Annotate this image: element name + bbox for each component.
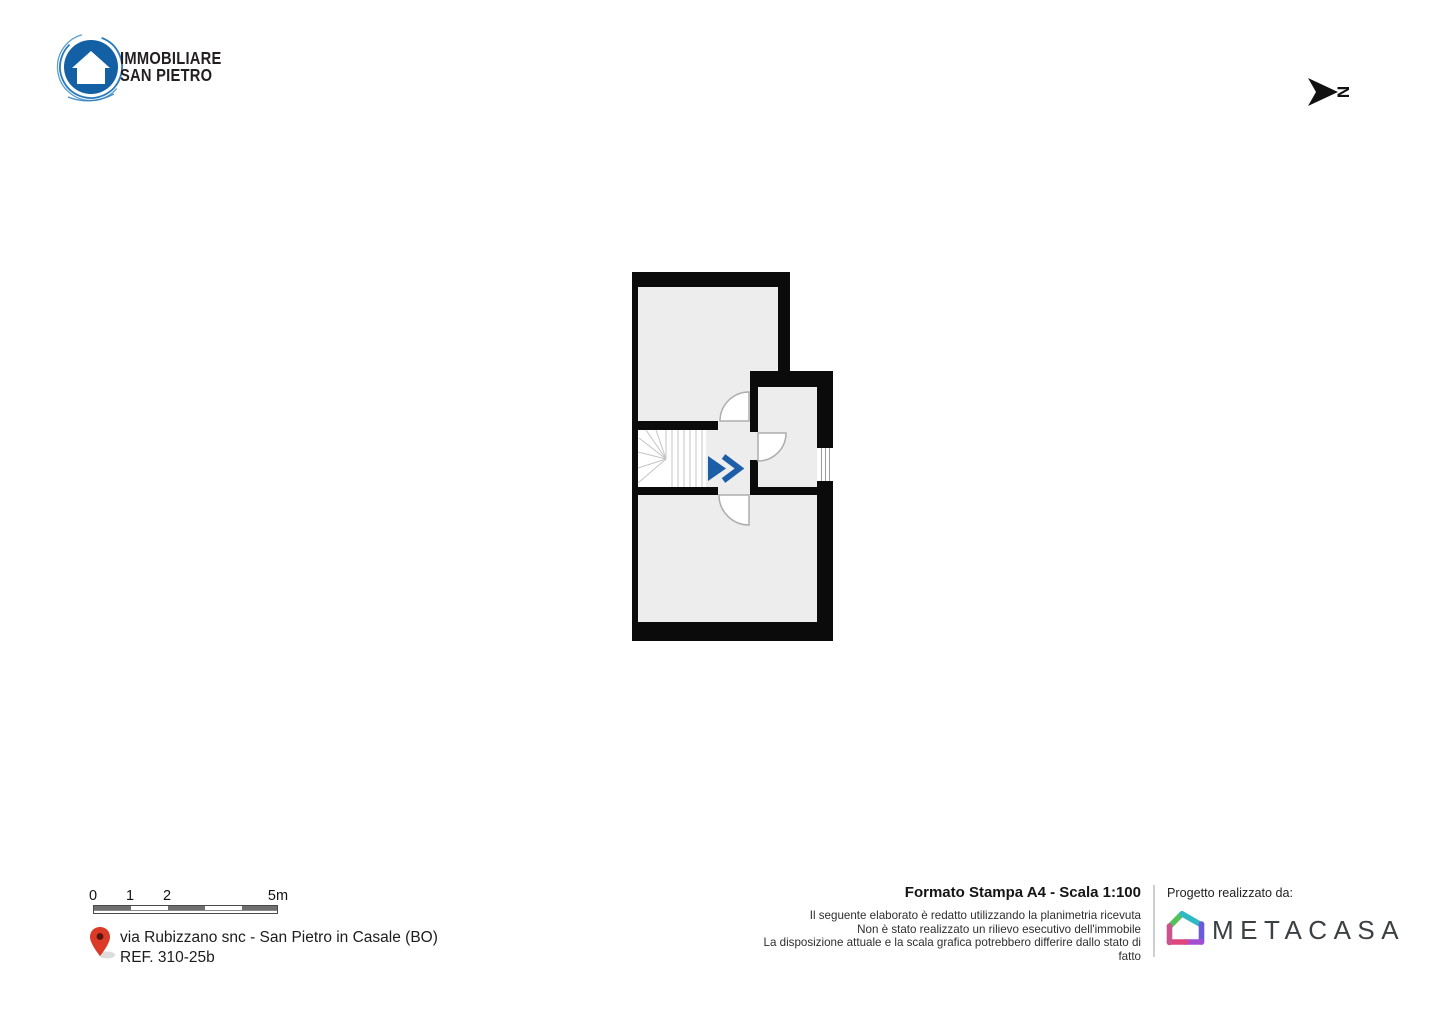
metacasa-logo-icon — [1165, 908, 1207, 950]
location-pin-icon — [88, 925, 122, 961]
door-opening-top — [718, 421, 750, 430]
floorplan-page: IMMOBILIARE SAN PIETRO N — [0, 0, 1440, 1018]
metacasa-brand-name: METACASA — [1212, 915, 1405, 946]
scale-tick-2: 2 — [163, 888, 171, 904]
reference-code: REF. 310-25b — [120, 948, 438, 968]
north-label: N — [1334, 86, 1353, 98]
scale-tick-0: 0 — [89, 888, 97, 904]
address-line: via Rubizzano snc - San Pietro in Casale… — [120, 928, 438, 948]
credits-label: Progetto realizzato da: — [1167, 886, 1293, 900]
door-opening-bottom — [718, 487, 750, 495]
scale-tick-5m: 5m — [268, 888, 288, 904]
scale-tick-1: 1 — [126, 888, 134, 904]
property-address: via Rubizzano snc - San Pietro in Casale… — [120, 928, 438, 967]
north-indicator: N — [1295, 65, 1375, 121]
scale-bar-graphic — [93, 905, 278, 914]
agency-name-line2: SAN PIETRO — [120, 67, 222, 84]
print-info: Formato Stampa A4 - Scala 1:100 Il segue… — [741, 884, 1141, 963]
disclaimer-line-1: Il seguente elaborato è redatto utilizza… — [741, 909, 1141, 923]
north-arrow-icon — [1308, 78, 1338, 106]
disclaimer-line-2: Non è stato realizzato un rilievo esecut… — [741, 923, 1141, 937]
print-format-title: Formato Stampa A4 - Scala 1:100 — [741, 884, 1141, 901]
agency-name: IMMOBILIARE SAN PIETRO — [120, 50, 222, 84]
floorplan-drawing — [632, 271, 833, 641]
footer-divider — [1153, 885, 1155, 957]
door-opening-right — [750, 432, 758, 460]
disclaimer-line-3: La disposizione attuale e la scala grafi… — [741, 936, 1141, 963]
scale-bar: 0 1 2 5m — [88, 888, 308, 920]
